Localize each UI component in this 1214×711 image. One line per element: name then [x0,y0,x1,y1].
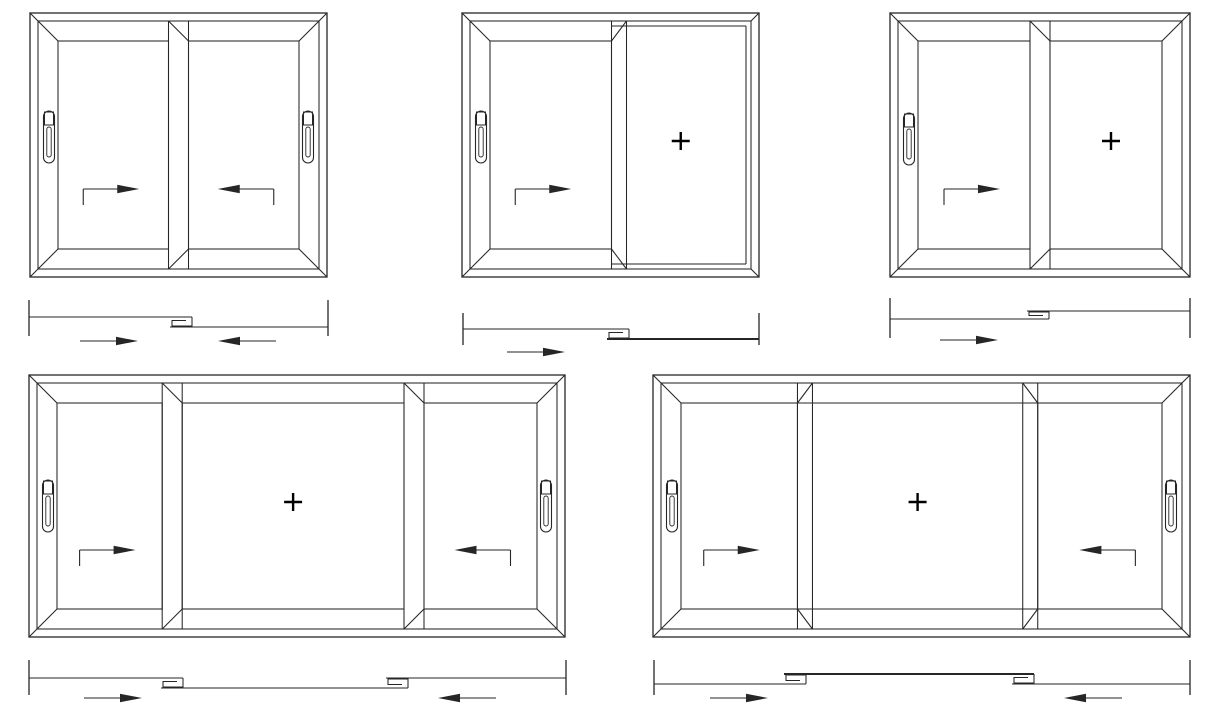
window-handle-icon [667,480,678,532]
plan-1-sliding-track-plan [29,300,328,345]
interlock-hook [786,675,806,684]
window-frame [462,13,759,277]
window-4-panel-2-slider [162,383,424,629]
interlock-hook [1029,312,1049,319]
window-type-diagram-sheet [0,0,1214,711]
window-1-elevation [30,13,327,277]
fixed-panel-plus-mark [1102,132,1120,150]
fixed-panel-plus-mark [284,493,302,511]
window-3-panel-1-slider [898,21,1050,269]
window-handle-icon [44,111,55,163]
window-handle-icon [1166,480,1177,532]
window-2-panel-2-fixed [612,21,747,269]
window-frame [29,375,565,637]
window-4-panel-3-slider [404,383,557,629]
window-3-elevation [890,13,1190,277]
window-frame [30,13,327,277]
window-5-panel-3-slider [1023,383,1182,629]
interlock-hook [172,317,192,326]
slide-direction-arrow-icon [83,185,139,205]
slide-direction-arrow-icon [455,546,511,566]
slide-direction-arrow-icon [80,337,138,345]
window-2-elevation [462,13,759,277]
window-4-panel-1-slider [37,383,182,629]
slide-direction-arrow-icon [507,348,565,356]
plan-3-sliding-track-plan [890,298,1190,344]
window-frame [653,375,1190,637]
window-5-elevation [653,375,1190,637]
slide-direction-arrow-icon [438,694,496,702]
slide-direction-arrow-icon [1079,546,1135,566]
slide-direction-arrow-icon [944,185,1000,205]
window-2-panel-1-slider [470,21,627,269]
slide-direction-arrow-icon [80,546,136,566]
window-handle-icon [904,113,915,165]
window-5-panel-2-fixed [797,383,1037,629]
window-3-panel-2-slider [1030,21,1182,269]
slide-direction-arrow-icon [1064,694,1122,702]
window-5-panel-1-slider [661,383,812,629]
window-4-elevation [29,375,565,637]
slide-direction-arrow-icon [218,337,276,345]
interlock-hook [388,679,408,688]
window-1-panel-1-slider [38,21,189,269]
interlock-hook [163,678,183,687]
fixed-panel-plus-mark [672,132,690,150]
fixed-panel-plus-mark [909,493,927,511]
plan-5-sliding-track-plan [654,660,1190,702]
window-handle-icon [541,480,552,532]
window-1-panel-2-slider [169,21,320,269]
slide-direction-arrow-icon [84,694,142,702]
window-frame [890,13,1190,277]
plan-2-sliding-track-plan [463,313,759,356]
plan-4-sliding-track-plan [29,660,566,702]
extent-ticks [29,300,328,336]
interlock-hook [1014,674,1034,683]
slide-direction-arrow-icon [940,336,998,344]
cad-canvas [0,0,1214,711]
window-handle-icon [43,480,54,532]
window-handle-icon [303,111,314,163]
slide-direction-arrow-icon [515,185,571,205]
extent-ticks [890,298,1190,338]
slide-direction-arrow-icon [710,694,768,702]
slide-direction-arrow-icon [218,185,274,205]
window-handle-icon [476,111,487,163]
slide-direction-arrow-icon [704,546,760,566]
interlock-hook [609,329,629,338]
extent-ticks [654,660,1190,695]
